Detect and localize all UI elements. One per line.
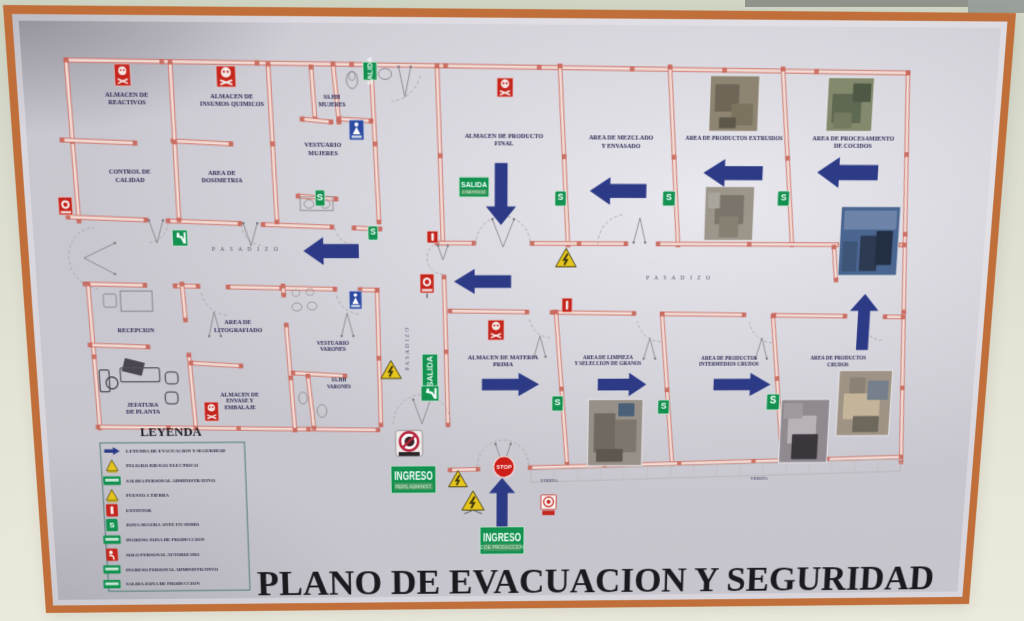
svg-text:ZONA PRODUC: ZONA PRODUC bbox=[462, 190, 486, 194]
svg-text:SALIDA: SALIDA bbox=[461, 180, 487, 190]
svg-text:S: S bbox=[780, 193, 787, 203]
svg-text:VESTUARIOMUJERES: VESTUARIOMUJERES bbox=[304, 142, 341, 157]
svg-text:INGRESO ZONA DE PRODUCCION: INGRESO ZONA DE PRODUCCION bbox=[126, 537, 205, 543]
svg-text:ALMACEN DEREACTIVOS: ALMACEN DEREACTIVOS bbox=[105, 92, 149, 107]
svg-text:AREA DE PRODUCTOS EXTRUIDOS: AREA DE PRODUCTOS EXTRUIDOS bbox=[685, 135, 783, 142]
svg-text:PELIGRO RIESGO ELECTRICO: PELIGRO RIESGO ELECTRICO bbox=[126, 464, 198, 470]
svg-text:AREA DE MEZCLADOY ENVASADO: AREA DE MEZCLADOY ENVASADO bbox=[589, 135, 654, 150]
svg-text:INGRESO PERSONAL ADMINISTRATIV: INGRESO PERSONAL ADMINISTRATIVO bbox=[126, 567, 218, 573]
svg-text:VESTUARIOVARONES: VESTUARIOVARONES bbox=[317, 341, 350, 353]
svg-text:SOLO PERSONAL AUTORIZADO: SOLO PERSONAL AUTORIZADO bbox=[126, 552, 200, 558]
svg-text:S: S bbox=[661, 401, 667, 411]
svg-text:JEFATURADE PLANTA: JEFATURADE PLANTA bbox=[125, 402, 160, 416]
svg-text:S: S bbox=[317, 192, 324, 203]
svg-text:PERS.ADMINIST.: PERS.ADMINIST. bbox=[395, 485, 432, 490]
svg-text:AREA DE LIMPIEZAY SELECCION DE: AREA DE LIMPIEZAY SELECCION DE GRANOS bbox=[574, 355, 641, 367]
svg-text:AREA DE PRODUCTOSINTERMEDIOS C: AREA DE PRODUCTOSINTERMEDIOS CRUDOS bbox=[699, 356, 759, 368]
svg-text:VEREDA: VEREDA bbox=[540, 479, 558, 483]
svg-text:SS.HHVARONES: SS.HHVARONES bbox=[327, 378, 351, 390]
svg-text:SALIDA: SALIDA bbox=[425, 356, 434, 387]
svg-text:PUESTO A TIERRA: PUESTO A TIERRA bbox=[126, 493, 169, 499]
svg-text:RECEPCION: RECEPCION bbox=[117, 327, 154, 334]
svg-text:LEYENDA DE EVACUACION Y SEGURI: LEYENDA DE EVACUACION Y SEGURIDAD bbox=[126, 449, 226, 455]
svg-text:S: S bbox=[558, 193, 564, 204]
svg-text:ZONA SEGURA ANTE UN SISMO: ZONA SEGURA ANTE UN SISMO bbox=[126, 523, 199, 529]
svg-text:STOP: STOP bbox=[496, 465, 512, 471]
svg-text:INGRESO: INGRESO bbox=[394, 469, 433, 482]
svg-text:S: S bbox=[666, 193, 673, 204]
svg-text:PLANO DE EVACUACION Y SEGURIDA: PLANO DE EVACUACION Y SEGURIDAD bbox=[256, 559, 935, 604]
svg-text:AREA DELITOGRAFIADO: AREA DELITOGRAFIADO bbox=[214, 320, 263, 334]
svg-text:ALMACEN DEINSUMOS QUIMICOS: ALMACEN DEINSUMOS QUIMICOS bbox=[200, 93, 265, 108]
svg-text:INGRESO: INGRESO bbox=[483, 531, 521, 544]
svg-text:VEREDA: VEREDA bbox=[750, 477, 768, 481]
svg-text:S: S bbox=[770, 396, 777, 407]
svg-text:SALIDA PERSONAL ADMINISTRATIVO: SALIDA PERSONAL ADMINISTRATIVO bbox=[126, 478, 215, 484]
svg-text:AREA DE PRODUCTOSCRUDOS: AREA DE PRODUCTOSCRUDOS bbox=[810, 356, 866, 368]
svg-text:P A S A D I Z O: P A S A D I Z O bbox=[212, 246, 280, 253]
svg-text:ALMACEN DEENVASE YEMBALAJE: ALMACEN DEENVASE YEMBALAJE bbox=[220, 392, 259, 412]
svg-text:Z.DE PRODUCCION: Z.DE PRODUCCION bbox=[480, 546, 524, 552]
svg-text:AREA DE PROCESAMIENTODE COCIDO: AREA DE PROCESAMIENTODE COCIDOS bbox=[812, 135, 895, 150]
svg-text:LEYENDA: LEYENDA bbox=[140, 425, 203, 440]
svg-text:AREA DEDOSIMETRIA: AREA DEDOSIMETRIA bbox=[201, 170, 242, 185]
svg-text:S: S bbox=[370, 227, 376, 237]
svg-text:S: S bbox=[109, 521, 115, 530]
svg-text:P A S A D I Z O: P A S A D I Z O bbox=[646, 275, 712, 282]
svg-text:ALMACEN DE MATERIAPRIMA: ALMACEN DE MATERIAPRIMA bbox=[468, 355, 538, 369]
svg-text:SALIDA ZONA DE PRODUCCION: SALIDA ZONA DE PRODUCCION bbox=[126, 582, 200, 588]
svg-text:SS.HHMUJERES: SS.HHMUJERES bbox=[318, 95, 346, 108]
svg-text:PASADIZO: PASADIZO bbox=[404, 326, 411, 371]
svg-text:EXTINTOR: EXTINTOR bbox=[126, 508, 152, 513]
svg-text:CONTROL DECALIDAD: CONTROL DECALIDAD bbox=[109, 169, 152, 184]
svg-text:ALMACEN DE PRODUCTOFINAL: ALMACEN DE PRODUCTOFINAL bbox=[465, 133, 544, 148]
svg-text:SALIDA: SALIDA bbox=[366, 56, 375, 85]
svg-text:S: S bbox=[554, 398, 560, 408]
